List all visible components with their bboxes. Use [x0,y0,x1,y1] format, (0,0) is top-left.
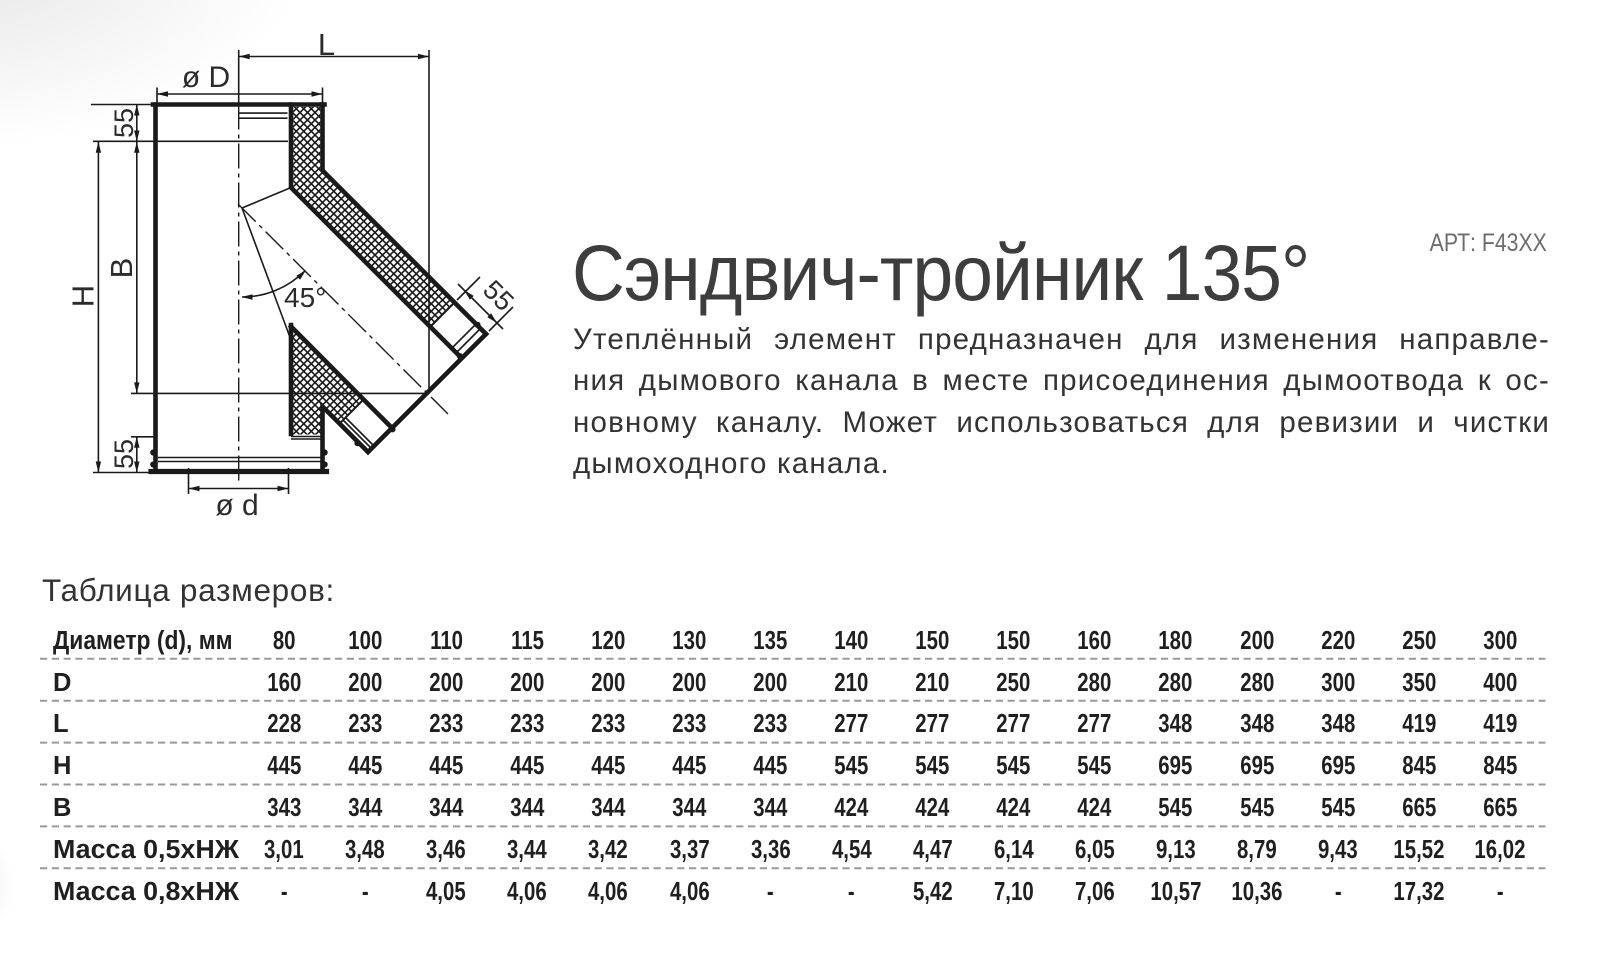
svg-text:ø d: ø d [215,489,258,522]
svg-text:55: 55 [109,108,139,138]
svg-text:45°: 45° [284,282,326,313]
svg-text:H: H [66,285,101,307]
svg-text:ø D: ø D [182,61,230,94]
svg-text:В: В [104,258,139,279]
svg-text:55: 55 [109,439,139,469]
svg-text:L: L [318,27,335,62]
